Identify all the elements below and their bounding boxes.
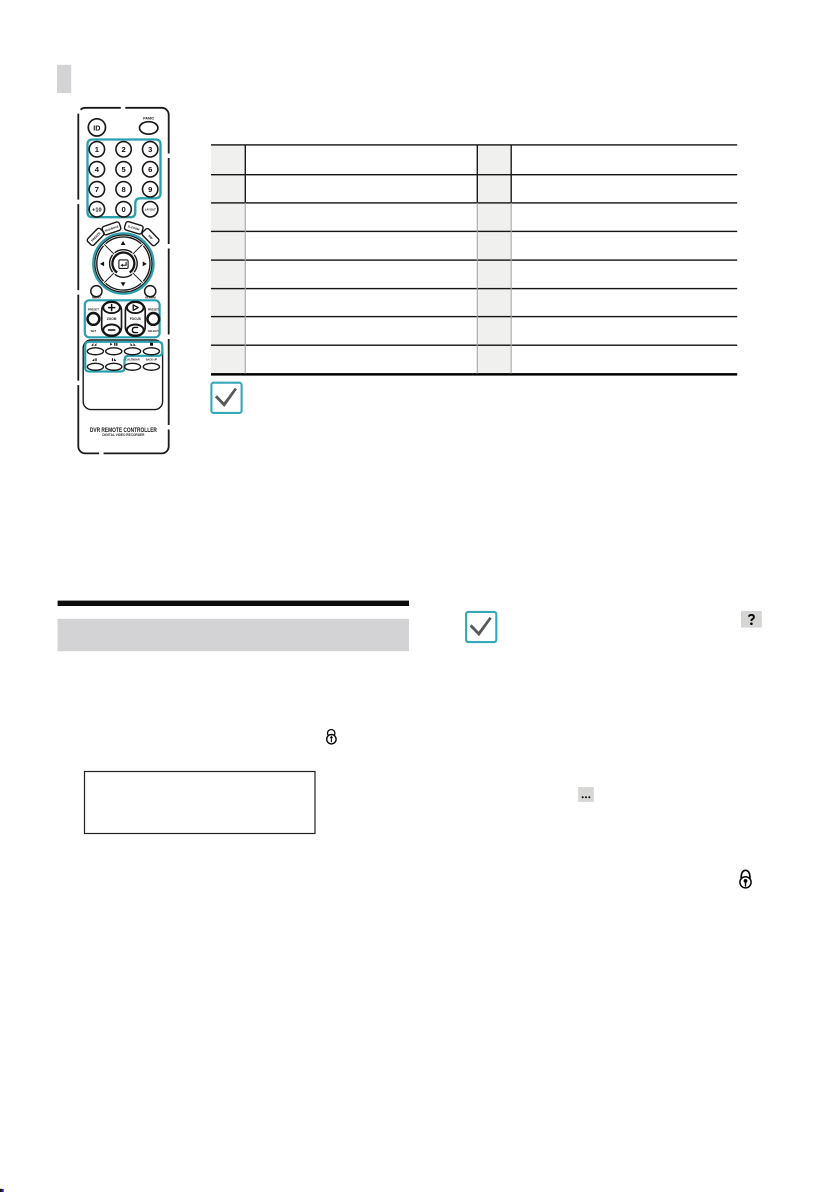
svg-text:LAYOUT: LAYOUT — [145, 207, 156, 211]
svg-text:ID: ID — [93, 123, 100, 132]
svg-text:3: 3 — [148, 145, 152, 154]
svg-text:SET: SET — [91, 329, 97, 333]
svg-text:CALENDAR: CALENDAR — [125, 358, 139, 361]
svg-text:9: 9 — [148, 185, 152, 194]
svg-text:BACK UP: BACK UP — [146, 358, 158, 361]
svg-text:+10: +10 — [92, 207, 102, 213]
svg-text:PANIC: PANIC — [143, 117, 154, 121]
svg-text:SELECT: SELECT — [148, 329, 159, 333]
svg-text:6: 6 — [148, 165, 152, 174]
svg-text:ZOOM: ZOOM — [107, 317, 117, 321]
svg-text:4: 4 — [95, 165, 100, 174]
svg-text:FREEZE: FREEZE — [90, 231, 101, 243]
svg-text:DIGITAL VIDEO RECORDER: DIGITAL VIDEO RECORDER — [102, 433, 145, 437]
svg-text:8: 8 — [121, 185, 125, 194]
svg-text:MENU: MENU — [92, 295, 101, 299]
svg-text:7: 7 — [95, 185, 99, 194]
svg-text:FOCUS: FOCUS — [130, 317, 141, 321]
svg-text:PRESET: PRESET — [148, 308, 159, 312]
svg-text:PIP: PIP — [147, 234, 153, 240]
svg-text:ALARM: ALARM — [145, 295, 156, 299]
svg-text:PRESET: PRESET — [88, 308, 99, 312]
svg-text:5: 5 — [121, 165, 126, 174]
svg-text:2: 2 — [121, 145, 125, 154]
svg-text:0: 0 — [121, 205, 125, 214]
svg-text:1: 1 — [95, 145, 100, 154]
